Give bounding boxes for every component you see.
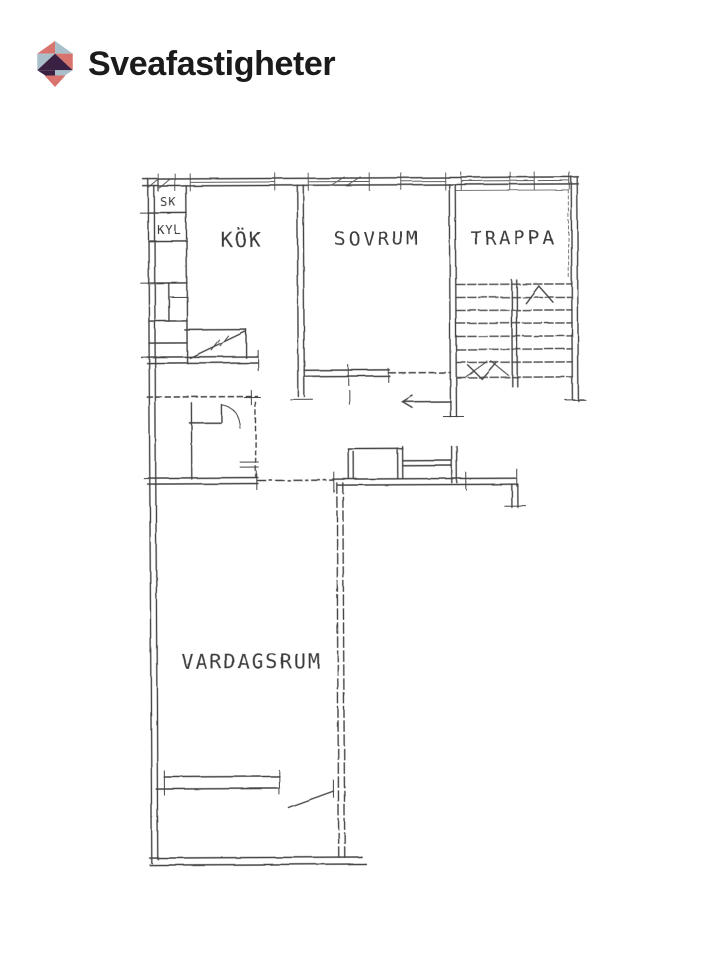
stairs	[456, 190, 572, 387]
bedroom-stairs-wall	[442, 184, 464, 482]
room-label-kyl: KYL	[157, 223, 182, 237]
hall-closet	[349, 447, 452, 479]
bathroom-walls	[147, 391, 260, 480]
room-label-sk: SK	[160, 195, 177, 209]
bedroom-bottom-wall	[304, 365, 450, 409]
room-label-kok: KÖK	[220, 228, 262, 252]
floor-plan: SK KYL KÖK SOVRUM TRAPPA VARDAGSRUM	[0, 0, 720, 960]
outer-walls	[143, 177, 588, 865]
balcony-window	[144, 477, 334, 808]
top-wall-windows	[148, 172, 569, 191]
room-label-vardagsrum: VARDAGSRUM	[181, 649, 322, 674]
living-room-right-wall	[337, 483, 345, 861]
kitchen-door	[147, 330, 258, 372]
room-labels: SK KYL KÖK SOVRUM TRAPPA VARDAGSRUM	[157, 193, 559, 674]
listing-floorplan-page: Sveafastigheter	[0, 0, 720, 960]
room-label-sovrum: SOVRUM	[334, 228, 421, 250]
room-label-trappa: TRAPPA	[470, 227, 557, 249]
kitchen-bedroom-wall	[289, 185, 312, 399]
closet-column	[140, 186, 187, 363]
floor-plan-walls	[140, 172, 588, 865]
stairs-up-arrow	[526, 286, 553, 303]
